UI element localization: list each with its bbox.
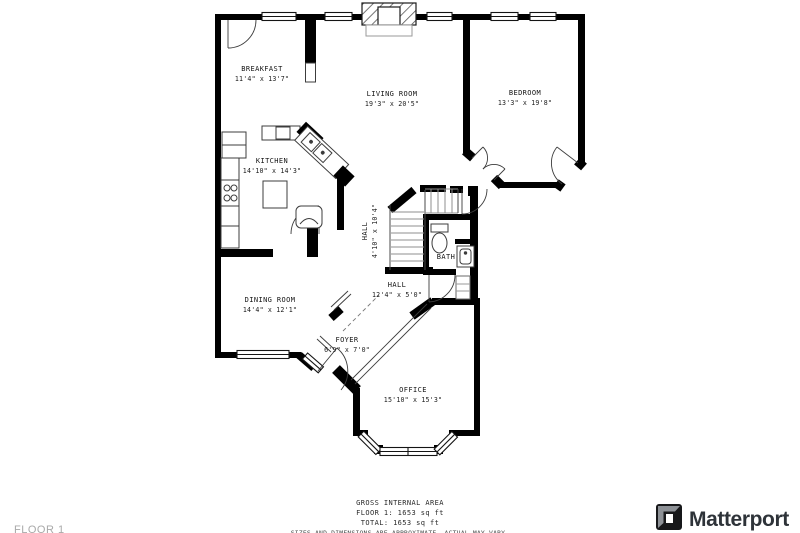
room-label-hall: HALL 12'4" x 5'0" <box>372 280 422 300</box>
room-dims: 4'10" x 10'4" <box>370 204 380 258</box>
room-name: BATH <box>437 252 455 263</box>
room-name: LIVING ROOM <box>365 89 419 100</box>
matterport-logo: Matterport <box>656 504 789 530</box>
matterport-wordmark: Matterport <box>689 505 789 530</box>
door <box>551 147 578 184</box>
window <box>434 431 457 454</box>
window <box>530 13 556 21</box>
room-label-foyer: FOYER 6'9" x 7'0" <box>324 335 370 355</box>
room-label-bedroom: BEDROOM 13'3" x 19'8" <box>498 88 552 108</box>
room-dims: 14'4" x 12'1" <box>243 305 297 315</box>
room-dims: 6'9" x 7'0" <box>324 345 370 355</box>
door <box>472 147 488 169</box>
room-name: FOYER <box>324 335 370 346</box>
room-dims: 19'3" x 20'5" <box>365 99 419 109</box>
sink <box>457 246 474 267</box>
door <box>429 275 455 302</box>
window <box>262 13 296 21</box>
room-dims: 12'4" x 5'0" <box>372 290 422 300</box>
room-label-hall-stairs: HALL 4'10" x 10'4" <box>360 204 380 258</box>
window <box>325 13 352 21</box>
room-label-living-room: LIVING ROOM 19'3" x 20'5" <box>365 89 419 109</box>
room-name: HALL <box>360 204 371 258</box>
window <box>380 448 437 456</box>
room-label-kitchen: KITCHEN 14'10" x 14'3" <box>243 156 301 176</box>
room-name: HALL <box>372 280 422 291</box>
window <box>491 13 518 21</box>
room-dims: 11'4" x 13'7" <box>235 74 289 84</box>
room-dims: 13'3" x 19'8" <box>498 98 552 108</box>
room-label-bath: BATH <box>437 252 455 263</box>
matterport-logo-icon <box>656 504 682 530</box>
room-dims: 15'10" x 15'3" <box>384 395 442 405</box>
window <box>427 13 452 21</box>
window <box>237 351 289 359</box>
room-name: DINING ROOM <box>243 295 297 306</box>
armchair <box>296 206 322 228</box>
floor-plan-page: BREAKFAST 11'4" x 13'7" LIVING ROOM 19'3… <box>0 0 800 533</box>
closet <box>456 276 470 299</box>
room-name: OFFICE <box>384 385 442 396</box>
room-name: BREAKFAST <box>235 64 289 75</box>
room-label-breakfast: BREAKFAST 11'4" x 13'7" <box>235 64 289 84</box>
room-label-office: OFFICE 15'10" x 15'3" <box>384 385 442 405</box>
window <box>358 431 381 454</box>
door <box>483 164 505 180</box>
fireplace <box>362 3 416 36</box>
door <box>228 20 256 48</box>
toilet <box>431 224 448 253</box>
floor-plan-drawing <box>0 0 800 533</box>
room-name: KITCHEN <box>243 156 301 167</box>
floor-selector-label: FLOOR 1 <box>14 524 65 533</box>
room-label-dining-room: DINING ROOM 14'4" x 12'1" <box>243 295 297 315</box>
room-dims: 14'10" x 14'3" <box>243 166 301 176</box>
room-name: BEDROOM <box>498 88 552 99</box>
